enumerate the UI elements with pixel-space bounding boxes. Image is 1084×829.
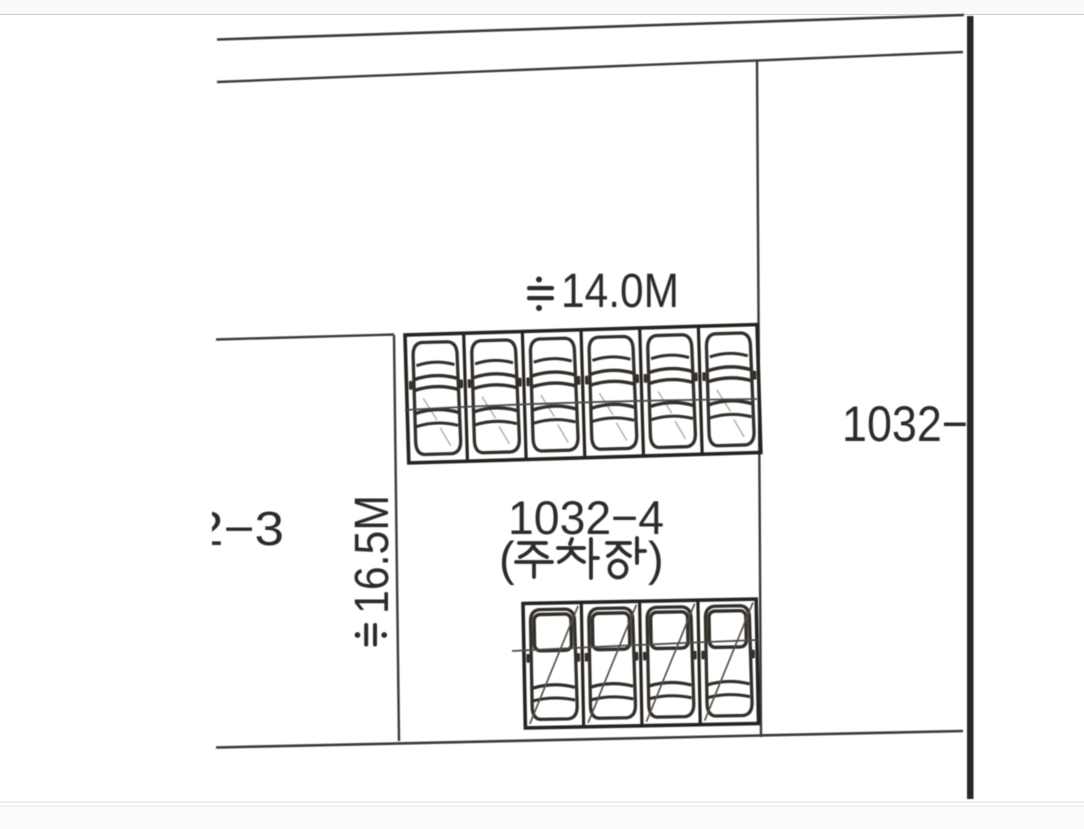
svg-text:(: ( bbox=[499, 532, 515, 585]
svg-text:14.0M: 14.0M bbox=[561, 265, 679, 318]
svg-text:): ) bbox=[648, 532, 664, 585]
svg-text:2−3: 2−3 bbox=[194, 503, 284, 556]
svg-text:16.5M: 16.5M bbox=[346, 495, 399, 614]
svg-text:1032−4: 1032−4 bbox=[508, 491, 664, 544]
svg-text:1032−: 1032− bbox=[842, 396, 968, 452]
